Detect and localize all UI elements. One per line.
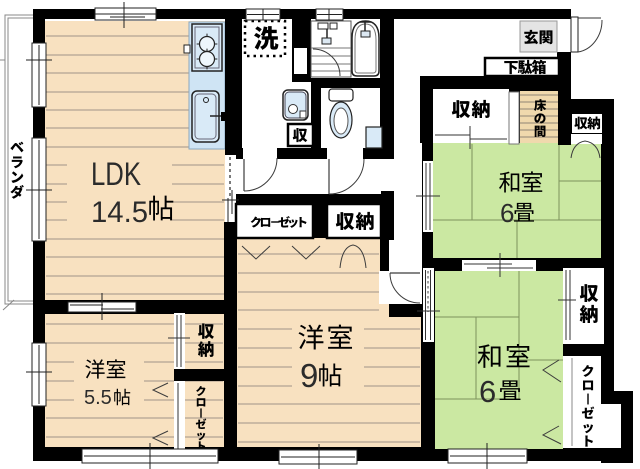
svg-text:5.5: 5.5: [84, 387, 112, 409]
svg-text:6: 6: [500, 198, 514, 228]
svg-text:6: 6: [479, 374, 496, 409]
svg-text:14.5: 14.5: [91, 196, 148, 229]
svg-text:LDK: LDK: [91, 156, 141, 192]
svg-text:9: 9: [300, 357, 318, 394]
